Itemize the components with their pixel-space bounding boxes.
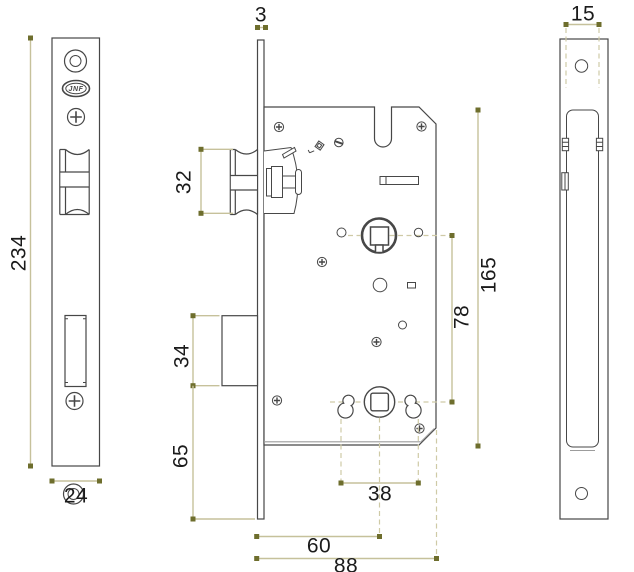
drawing-canvas: JNF <box>0 0 634 572</box>
brand-logo-text: JNF <box>68 86 83 93</box>
dim-60-label: 60 <box>307 536 331 557</box>
latch-bolt-front <box>60 150 89 215</box>
dim-234-label: 234 <box>9 235 30 272</box>
side-view <box>222 40 455 519</box>
dim-78-label: 78 <box>452 305 473 329</box>
edge-latch-guide <box>562 173 569 190</box>
dim-88-label: 88 <box>334 556 358 572</box>
latch-bolt-side <box>230 150 257 215</box>
edge-clip-left <box>562 138 568 150</box>
dim-34-line <box>193 316 220 386</box>
edge-clip-right <box>596 138 602 150</box>
front-view: JNF <box>52 38 100 504</box>
edge-view <box>560 39 608 519</box>
dim-24-label: 24 <box>64 486 88 507</box>
deadbolt-front <box>65 316 86 387</box>
dim-3-label: 3 <box>255 5 267 26</box>
dim-34-label: 34 <box>172 344 193 368</box>
dim-32-label: 32 <box>174 170 195 194</box>
dim-65-label: 65 <box>171 444 192 468</box>
dim-65-line <box>193 386 255 519</box>
dim-32-line <box>201 149 233 213</box>
faceplate-edge <box>258 40 265 519</box>
deadbolt-side <box>222 316 258 386</box>
mounting-slot <box>380 177 419 185</box>
dim-15-label: 15 <box>571 4 595 25</box>
lock-technical-drawing: JNF <box>0 0 634 572</box>
dim-165-label: 165 <box>479 257 500 294</box>
cylinder-hole <box>364 387 394 417</box>
dim-38-label: 38 <box>368 484 392 505</box>
